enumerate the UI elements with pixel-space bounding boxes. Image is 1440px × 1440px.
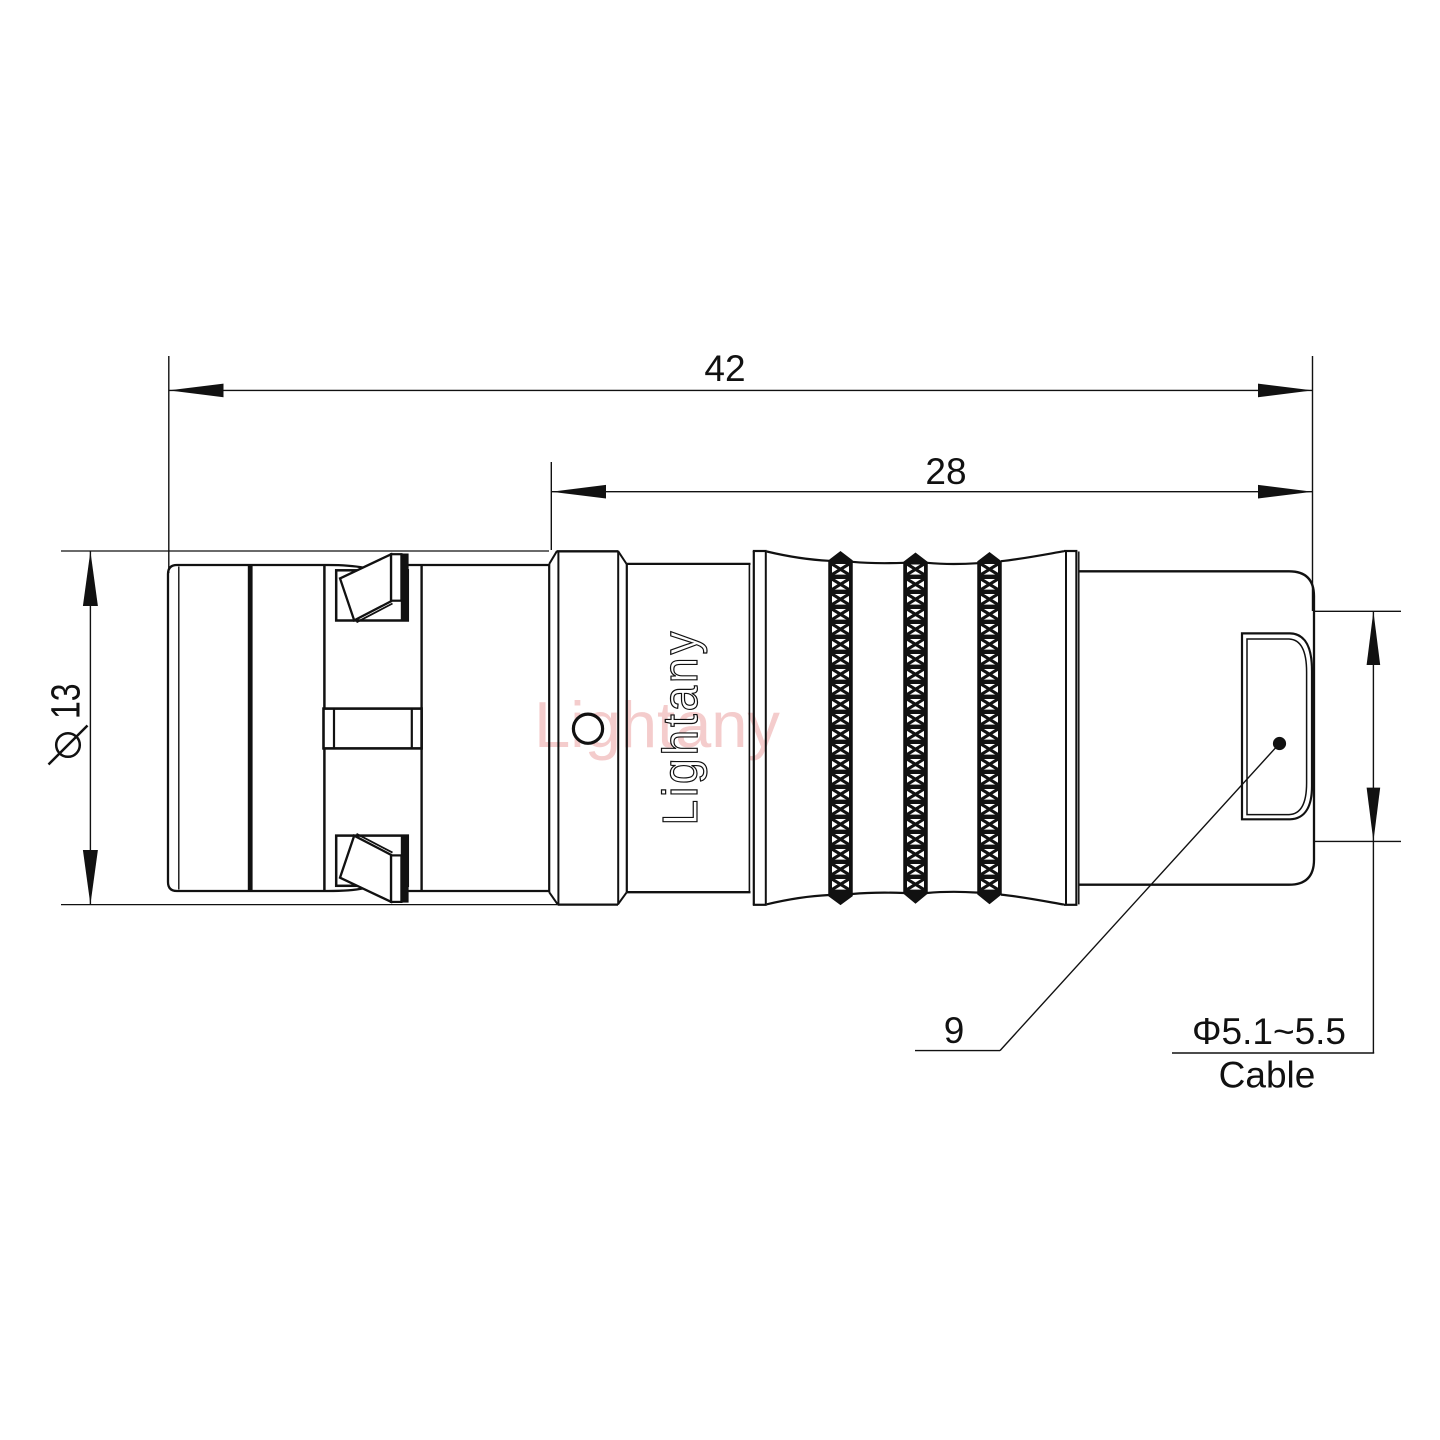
svg-text:13: 13 [43,683,89,719]
svg-text:9: 9 [944,1010,965,1051]
svg-text:Cable: Cable [1219,1055,1316,1096]
svg-text:Φ5.1~5.5: Φ5.1~5.5 [1192,1011,1346,1052]
svg-text:28: 28 [925,451,966,492]
svg-text:42: 42 [704,348,745,389]
